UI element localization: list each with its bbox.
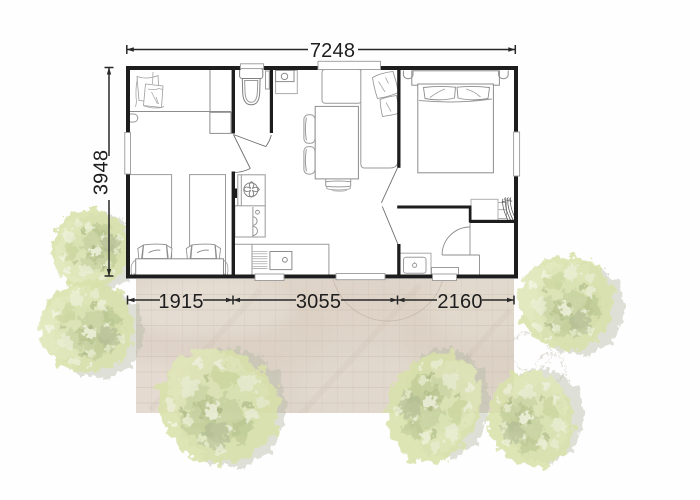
- svg-text:7248: 7248: [310, 40, 355, 62]
- svg-text:2160: 2160: [437, 291, 482, 313]
- svg-text:3055: 3055: [296, 291, 341, 313]
- svg-text:1915: 1915: [158, 291, 203, 313]
- svg-text:3948: 3948: [91, 150, 113, 195]
